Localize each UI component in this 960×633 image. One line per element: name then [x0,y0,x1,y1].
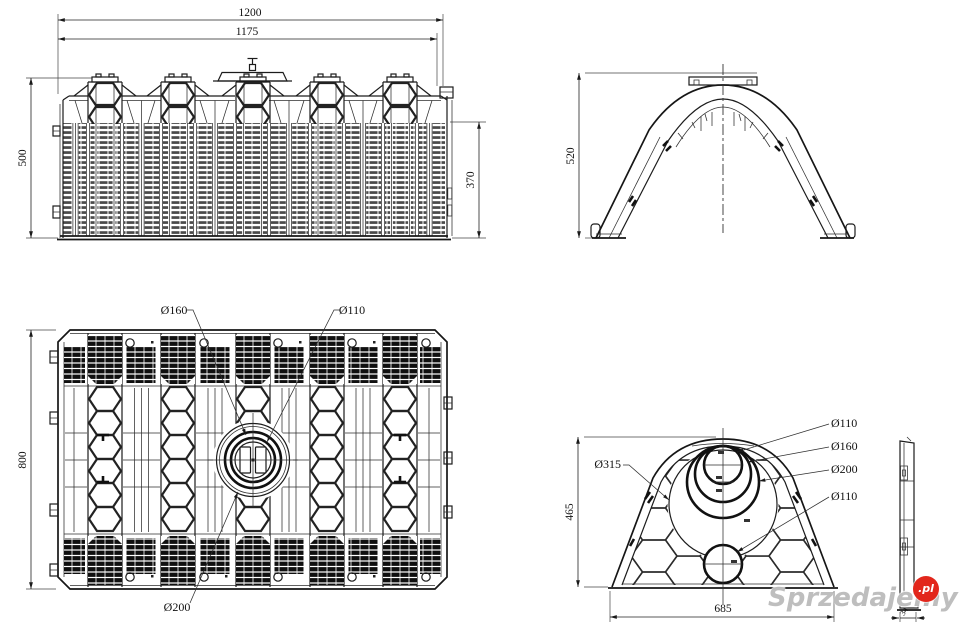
center-cap [213,59,292,82]
watermark-pl-label: .pl [918,582,934,595]
drawing-canvas: 1200 1175 500 370 [0,0,960,633]
end-label-port-160: Ø160 [831,439,858,453]
end-label-port-200: Ø200 [831,462,858,476]
center-port [208,413,298,507]
end-label-port-315: Ø315 [594,457,621,471]
dim-inner-width: 1175 [236,26,259,38]
dim-end-height: 465 [564,503,576,521]
dim-body-height: 370 [465,171,477,189]
front-elevation-view: 1200 1175 500 370 [17,7,486,240]
dim-section-height: 520 [565,147,577,165]
watermark-pl-badge: .pl [913,576,939,602]
plan-view: 800 [17,303,452,614]
dim-plan-depth: 800 [17,451,29,469]
end-label-port-110-bottom: Ø110 [831,489,857,503]
louver-body [63,123,445,236]
end-label-port-110-top: Ø110 [831,416,857,430]
dim-height: 500 [17,149,29,167]
plan-label-port-200: Ø200 [164,600,191,614]
dim-end-width: 685 [714,603,732,615]
technical-drawing-sheet: 1200 1175 500 370 [0,0,960,633]
cross-section-view: 520 [565,64,855,238]
plan-label-port-160: Ø160 [161,303,188,317]
plan-label-port-110: Ø110 [339,303,365,317]
dim-overall-width: 1200 [239,7,262,19]
